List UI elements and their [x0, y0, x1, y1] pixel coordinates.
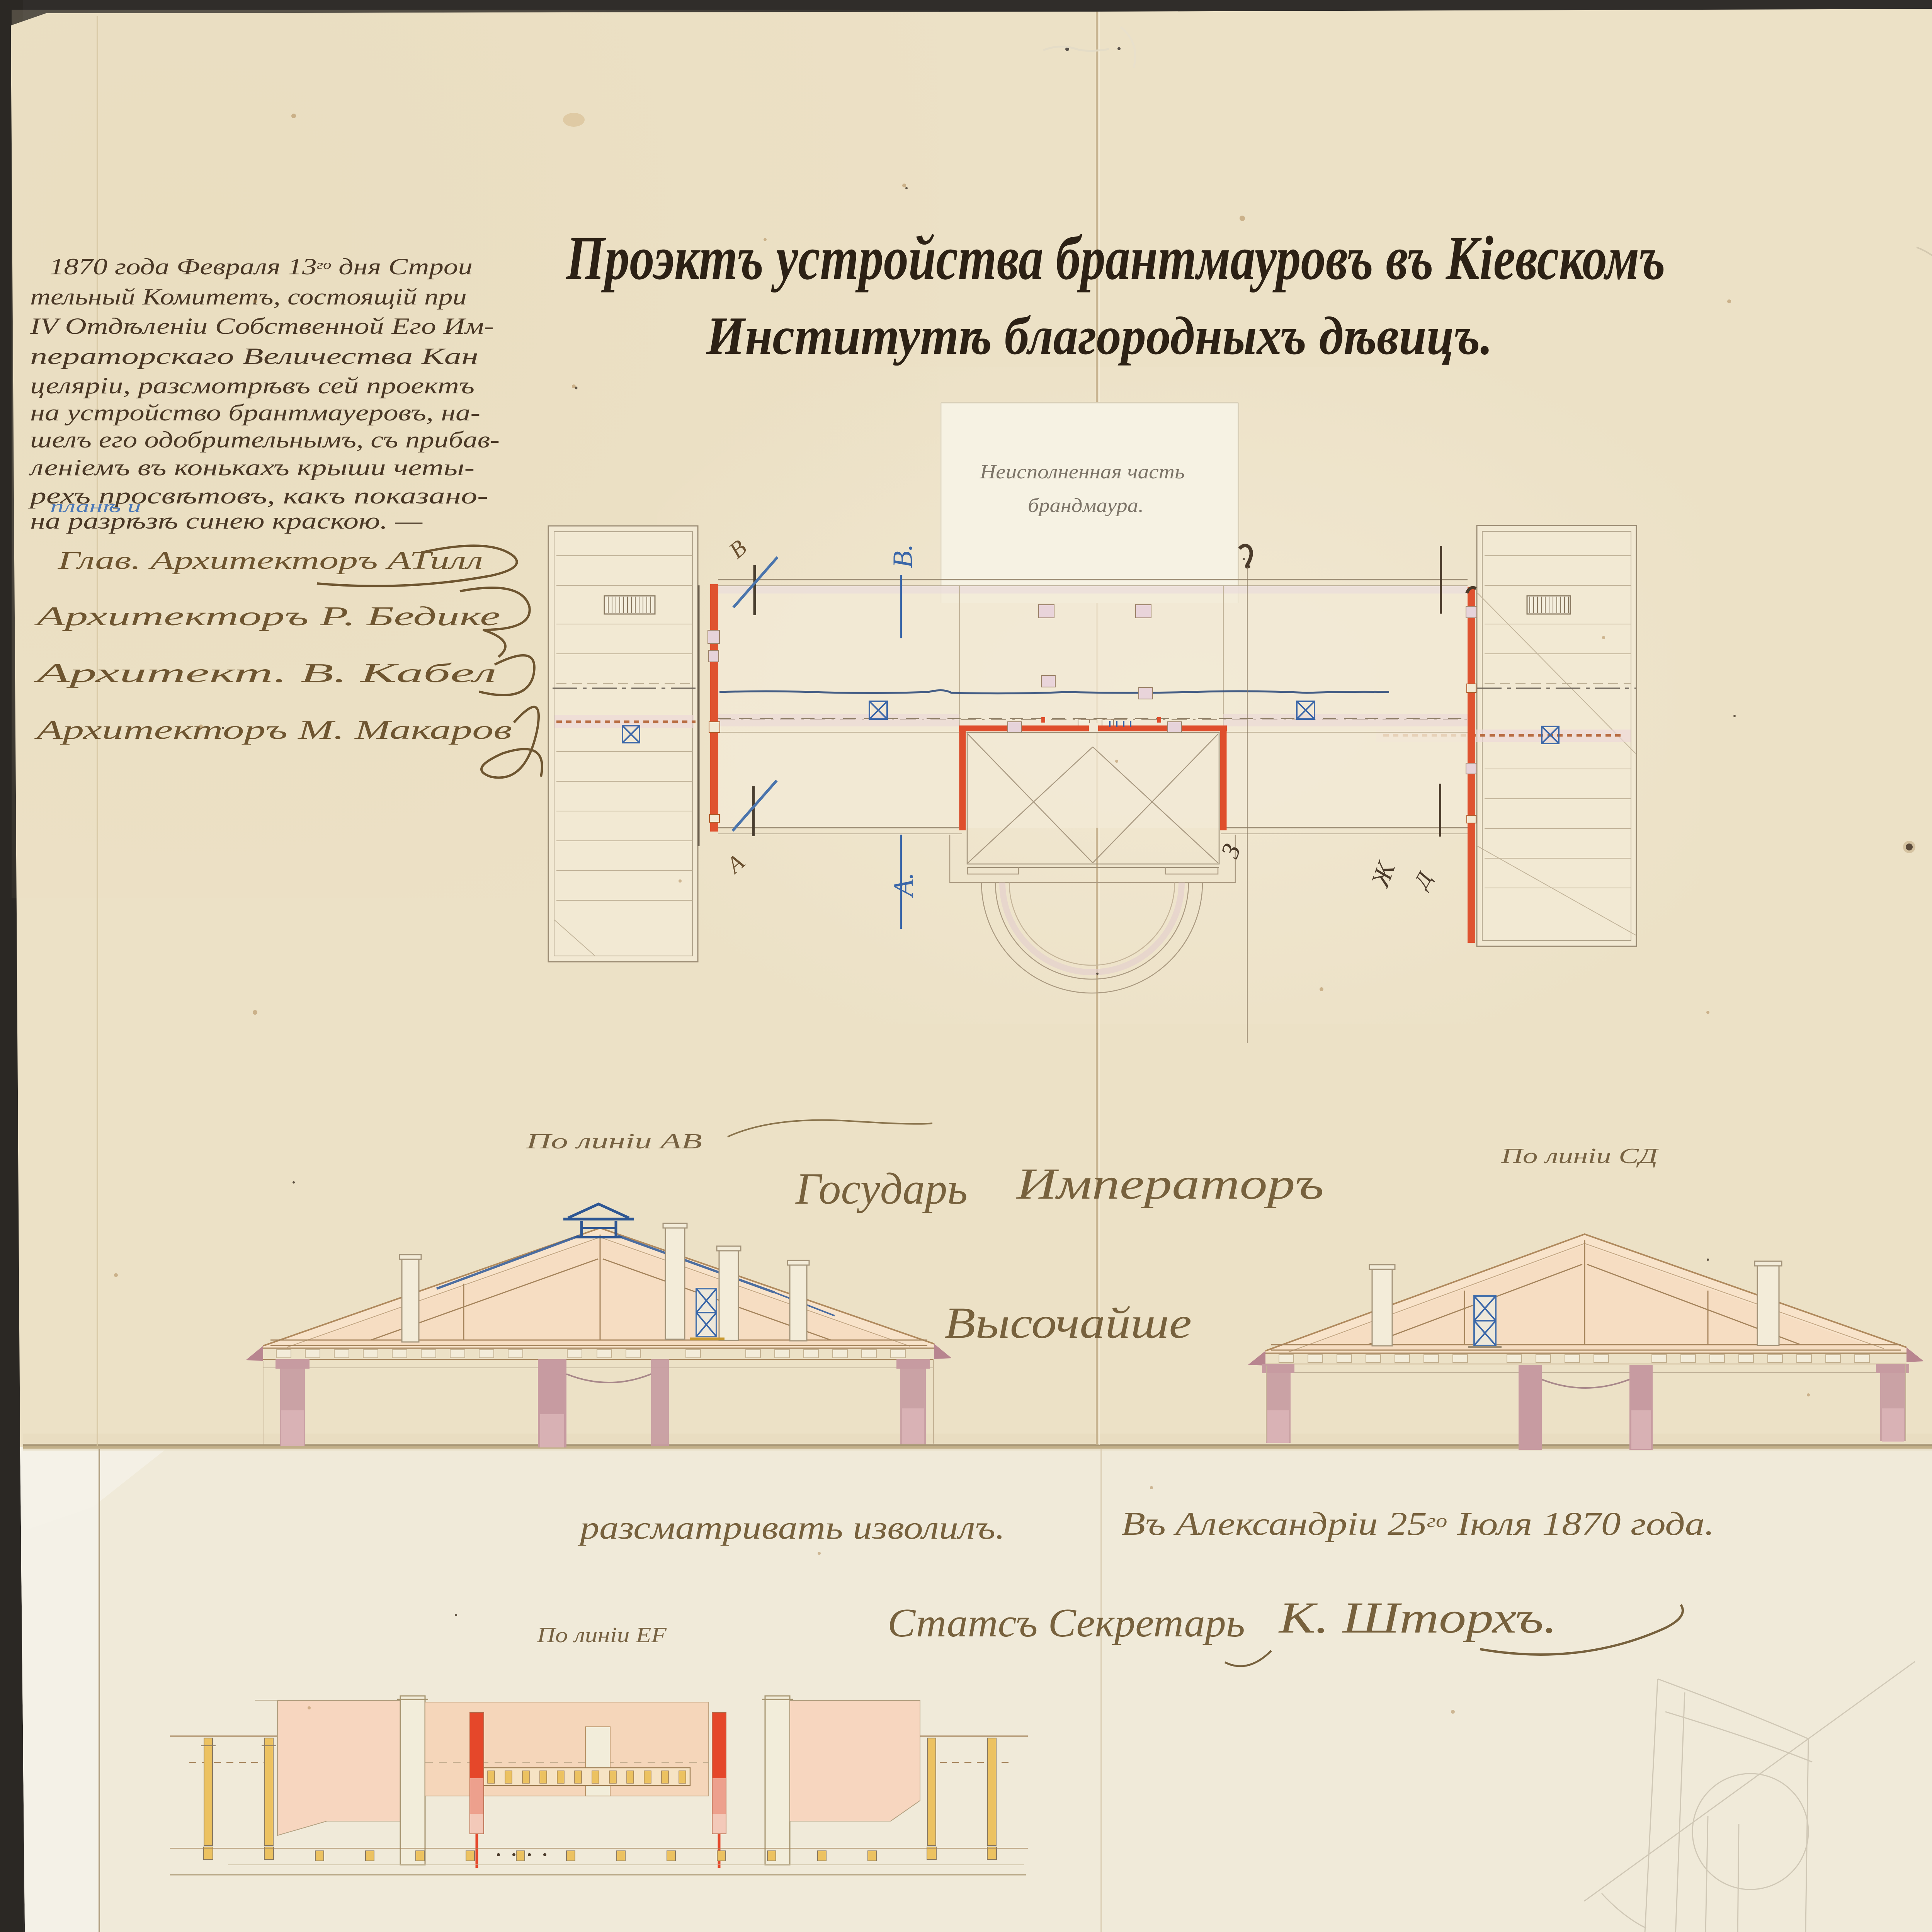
svg-text:на устройство брантмауеровъ, н: на устройство брантмауеровъ, на- [30, 400, 480, 425]
svg-text:ператорскаго Величества Кан: ператорскаго Величества Кан [30, 344, 478, 369]
svg-text:Архитекторъ М. Макаров: Архитекторъ М. Макаров [34, 715, 512, 745]
svg-text:Статсъ Секретарь: Статсъ Секретарь [888, 1600, 1245, 1645]
svg-text:тельный Комитетъ, состоящій пр: тельный Комитетъ, состоящій при [30, 284, 467, 310]
svg-text:IV Отдѣленіи Собственной Его И: IV Отдѣленіи Собственной Его Им- [30, 313, 494, 339]
svg-text:Проэктъ устройства брантмаур: Проэктъ устройства брантмауровъ въ Кіевс… [565, 224, 1665, 293]
svg-text:Архитекторъ Р. Бедике: Архитекторъ Р. Бедике [34, 602, 500, 631]
svg-text:Императоръ: Императоръ [1016, 1159, 1324, 1208]
svg-text:Неисполненная часть: Неисполненная часть [980, 461, 1185, 483]
svg-text:По линіи СД: По линіи СД [1501, 1144, 1660, 1168]
svg-text:По линіи ЕF: По линіи ЕF [537, 1623, 667, 1647]
svg-text:К. Шторхъ.: К. Шторхъ. [1278, 1593, 1557, 1642]
svg-text:на разрѣзѣ синею краскою. —: на разрѣзѣ синею краскою. — [30, 508, 423, 534]
svg-text:леніемъ въ конькахъ крыши четы: леніемъ въ конькахъ крыши четы- [29, 455, 474, 480]
svg-text:Государь: Государь [795, 1164, 968, 1213]
svg-text:Въ Александріи 25го Іюля 1870: Въ Александріи 25го Іюля 1870 года. [1121, 1505, 1714, 1542]
svg-text:По линіи АВ: По линіи АВ [526, 1129, 702, 1153]
svg-text:Высочайше: Высочайше [944, 1298, 1192, 1347]
svg-text:1870 года Февраля 13го дня Стр: 1870 года Февраля 13го дня Строи [49, 254, 473, 279]
svg-text:целяріи, разсмотрѣвъ сей проек: целяріи, разсмотрѣвъ сей проектъ [30, 373, 474, 398]
svg-text:разсматривать изволилъ.: разсматривать изволилъ. [577, 1509, 1005, 1546]
svg-text:Институтѣ благородныхъ дѣвиц: Институтѣ благородныхъ дѣвицъ. [706, 306, 1493, 366]
svg-text:Глав. Архитекторъ АТилл: Глав. Архитекторъ АТилл [57, 546, 483, 575]
svg-text:брандмаура.: брандмаура. [1028, 495, 1144, 517]
svg-text:В.: В. [887, 544, 918, 568]
svg-text:А.: А. [888, 872, 919, 898]
svg-text:Архитект. В. Кабел: Архитект. В. Кабел [34, 658, 497, 688]
svg-text:шелъ его одобрительнымъ, съ пр: шелъ его одобрительнымъ, съ прибав- [30, 427, 500, 452]
